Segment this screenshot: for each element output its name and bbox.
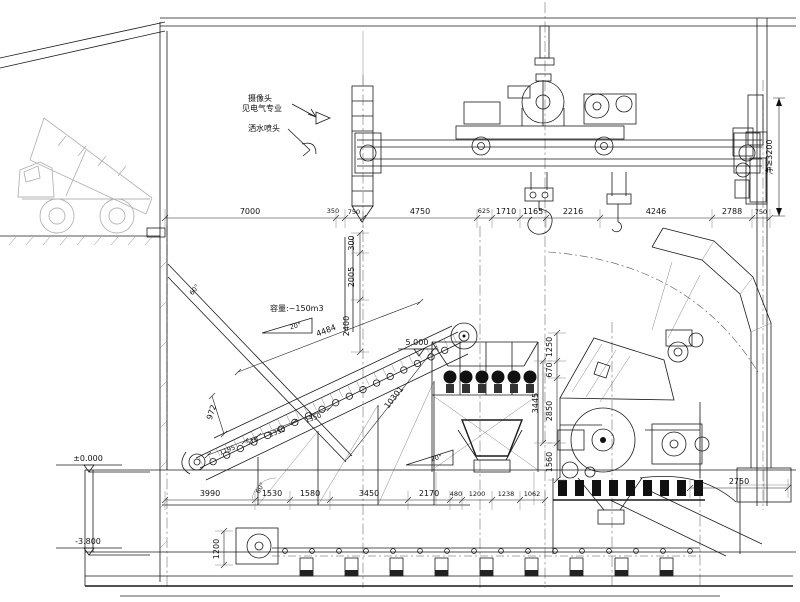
clearance-label: 净≥3200 — [764, 139, 774, 174]
feeder-pan — [400, 360, 404, 368]
anchor-block — [626, 480, 635, 496]
dim-label: 3990 — [200, 489, 220, 498]
ground-hatch — [60, 237, 67, 245]
dim-label: 2170 — [419, 489, 439, 498]
dim-line — [238, 302, 420, 372]
dim-label: 1560 — [545, 452, 554, 472]
anchor-block — [592, 480, 601, 496]
wall-hatch — [160, 261, 167, 268]
dim-label: 300 — [347, 235, 356, 250]
ground-hatch — [111, 237, 118, 245]
wall-hatch — [160, 381, 167, 388]
dim-label: 4750 — [410, 207, 430, 216]
dim-label: 10301 — [383, 385, 406, 411]
feeder-pan — [374, 372, 378, 380]
dim-tick — [417, 299, 423, 305]
dim-label: 625 — [478, 207, 490, 215]
camera-label: 摄像头 — [248, 93, 272, 103]
dim-label: 350 — [327, 207, 339, 215]
wall-hatch — [160, 541, 167, 548]
sprinkler-label: 洒水喷头 — [248, 123, 280, 133]
dim-label: 1250 — [545, 337, 554, 357]
crane-hook-block — [525, 172, 553, 234]
grizzly-disc — [508, 371, 521, 384]
crane-hook — [528, 201, 552, 234]
pedestal-base — [660, 570, 673, 576]
discharge-duct — [652, 228, 791, 502]
ground-hatch — [128, 237, 135, 245]
angle-label: 60° — [188, 283, 201, 297]
dim-label: 7000 — [240, 207, 260, 216]
sprinkler-leader — [288, 129, 310, 150]
hopper-capacity-label: 容量:~150m3 — [270, 303, 324, 313]
anchor-block — [660, 480, 669, 496]
feeder-pan — [391, 364, 395, 372]
belt-idler — [472, 549, 477, 554]
slope-symbol — [262, 318, 312, 333]
belt-tail-pulley — [247, 534, 271, 558]
belt-idler — [607, 549, 612, 554]
dim-label: 1580 — [300, 489, 320, 498]
elevation-label: ±0.000 — [73, 454, 103, 463]
belt-idler — [283, 549, 288, 554]
truck-wheel — [40, 199, 74, 233]
feeder-pan — [313, 402, 317, 410]
ground-hatch — [94, 237, 101, 245]
belt-idler — [634, 549, 639, 554]
grizzly-stem — [462, 384, 470, 393]
grizzly-disc — [460, 371, 473, 384]
dim-label: 1200 — [212, 539, 221, 559]
grizzly-disc — [444, 371, 457, 384]
building-structure — [0, 18, 796, 582]
belt-idler — [580, 549, 585, 554]
wall-hatch — [160, 341, 167, 348]
dim-label: 1062 — [524, 490, 541, 498]
dim-label: 2788 — [722, 207, 742, 216]
belt-idler — [418, 549, 423, 554]
dim-label: 750 — [348, 208, 360, 216]
feeder-pan — [444, 339, 448, 347]
pedestal-base — [300, 570, 313, 576]
feeder-pan — [365, 377, 369, 385]
dim-label: 1710 — [496, 207, 516, 216]
grizzly-stem — [446, 384, 454, 393]
feeder-pan — [330, 394, 334, 402]
feeder-pan — [383, 368, 387, 376]
crushing-station-section-drawing: 7000 350 750 4750 625 1710 1165 2216 424… — [0, 0, 800, 602]
dim-tick — [235, 369, 241, 375]
pedestal-base — [525, 570, 538, 576]
dim-tick — [209, 393, 215, 399]
belt-idler — [526, 549, 531, 554]
feeder-pan — [356, 381, 360, 389]
elevation-label: -3.800 — [75, 537, 101, 546]
dim-label: 4246 — [646, 207, 666, 216]
ground-hatch — [26, 237, 33, 245]
elevation-marker-ground: ±0.000 — [56, 454, 150, 472]
belt-conveyor — [236, 528, 700, 564]
dim-label: 1238 — [498, 490, 515, 498]
dim-line — [348, 349, 434, 458]
pedestal-base — [435, 570, 448, 576]
feeder-pan — [348, 385, 352, 393]
crane-bridge-girder — [357, 140, 762, 166]
pedestal-base — [570, 570, 583, 576]
dim-label: 2400 — [342, 316, 351, 336]
ground-hatch — [43, 237, 50, 245]
pedestal-base — [615, 570, 628, 576]
feeder-pan — [453, 335, 457, 343]
dim-label: 1165 — [523, 207, 543, 216]
grizzly-disc — [524, 371, 537, 384]
feeder-tail-sprocket — [189, 454, 205, 470]
dump-truck — [0, 118, 165, 237]
belt-idler — [661, 549, 666, 554]
feeder-supports — [258, 381, 434, 505]
belt-idler — [364, 549, 369, 554]
dim-label: 3445 — [531, 393, 540, 413]
wall-hatch — [160, 461, 167, 468]
basement-foundation — [9, 237, 796, 596]
belt-takeup-frame — [236, 528, 278, 564]
camera-note: 见电气专业 — [242, 103, 282, 113]
belt-idler — [445, 549, 450, 554]
anchor-block — [575, 480, 584, 496]
pedestal-base — [345, 570, 358, 576]
belt-idler — [391, 549, 396, 554]
dim-label: 1200 — [469, 490, 486, 498]
elevation-label: 5.000 — [406, 338, 429, 347]
dim-label: 3450 — [359, 489, 379, 498]
feeder-pan — [339, 389, 343, 397]
crusher-feed-hood — [560, 338, 674, 400]
camera-leader — [292, 104, 316, 117]
feeder-pan — [409, 356, 413, 364]
grizzly-disc — [476, 371, 489, 384]
angle-label: 20° — [289, 321, 302, 332]
pedestal-base — [390, 570, 403, 576]
anchor-block — [609, 480, 618, 496]
ground-hatch — [9, 237, 16, 245]
discharge-hopper — [462, 420, 522, 456]
dim-label: 972 — [205, 404, 218, 421]
anchor-block — [677, 480, 686, 496]
grizzly-stem — [526, 384, 534, 393]
camera-icon — [316, 112, 330, 124]
crusher — [548, 252, 762, 556]
dim-label: 1530 — [262, 489, 282, 498]
dim-label: 2005 — [347, 267, 356, 287]
truck-wheel — [100, 199, 134, 233]
dim-label: 2750 — [729, 477, 749, 486]
pedestal-base — [480, 570, 493, 576]
dim-label: 4484 — [315, 323, 337, 339]
grizzly-stem — [510, 384, 518, 393]
dim-label: 670 — [545, 362, 554, 377]
dim-label: 2850 — [545, 401, 554, 421]
feeder-pan — [286, 415, 290, 423]
auxiliary-hoist — [607, 172, 631, 232]
dimensions: 7000 350 750 4750 625 1710 1165 2216 424… — [162, 207, 791, 568]
feeder-pan — [321, 398, 325, 406]
grizzly-stem — [478, 384, 486, 393]
grizzly-disc — [492, 371, 505, 384]
wall-hatch — [160, 501, 167, 508]
dim-label: 480 — [450, 490, 462, 498]
belt-idler — [499, 549, 504, 554]
grizzly-feeder — [432, 342, 538, 505]
annotations: 摄像头 见电气专业 洒水喷头 容量:~150m3 20° 20° 60° 60°… — [56, 93, 785, 555]
belt-idler — [337, 549, 342, 554]
grizzly-stem — [494, 384, 502, 393]
ground-hatch — [77, 237, 84, 245]
wall-hatch — [160, 421, 167, 428]
belt-idler — [310, 549, 315, 554]
hoist-motor — [464, 102, 500, 124]
anchor-block — [643, 480, 652, 496]
wall-hatch — [160, 301, 167, 308]
angle-label: 20° — [430, 453, 443, 464]
crane-trolley — [456, 74, 636, 155]
receiving-hopper — [162, 264, 470, 505]
dim-tick — [345, 455, 351, 461]
engineering-drawing-canvas: 7000 350 750 4750 625 1710 1165 2216 424… — [0, 0, 800, 602]
belt-idler — [688, 549, 693, 554]
dim-label: 2216 — [563, 207, 583, 216]
ground-hatch — [145, 237, 152, 245]
anchor-block — [558, 480, 567, 496]
dim-label: 750 — [755, 208, 767, 216]
